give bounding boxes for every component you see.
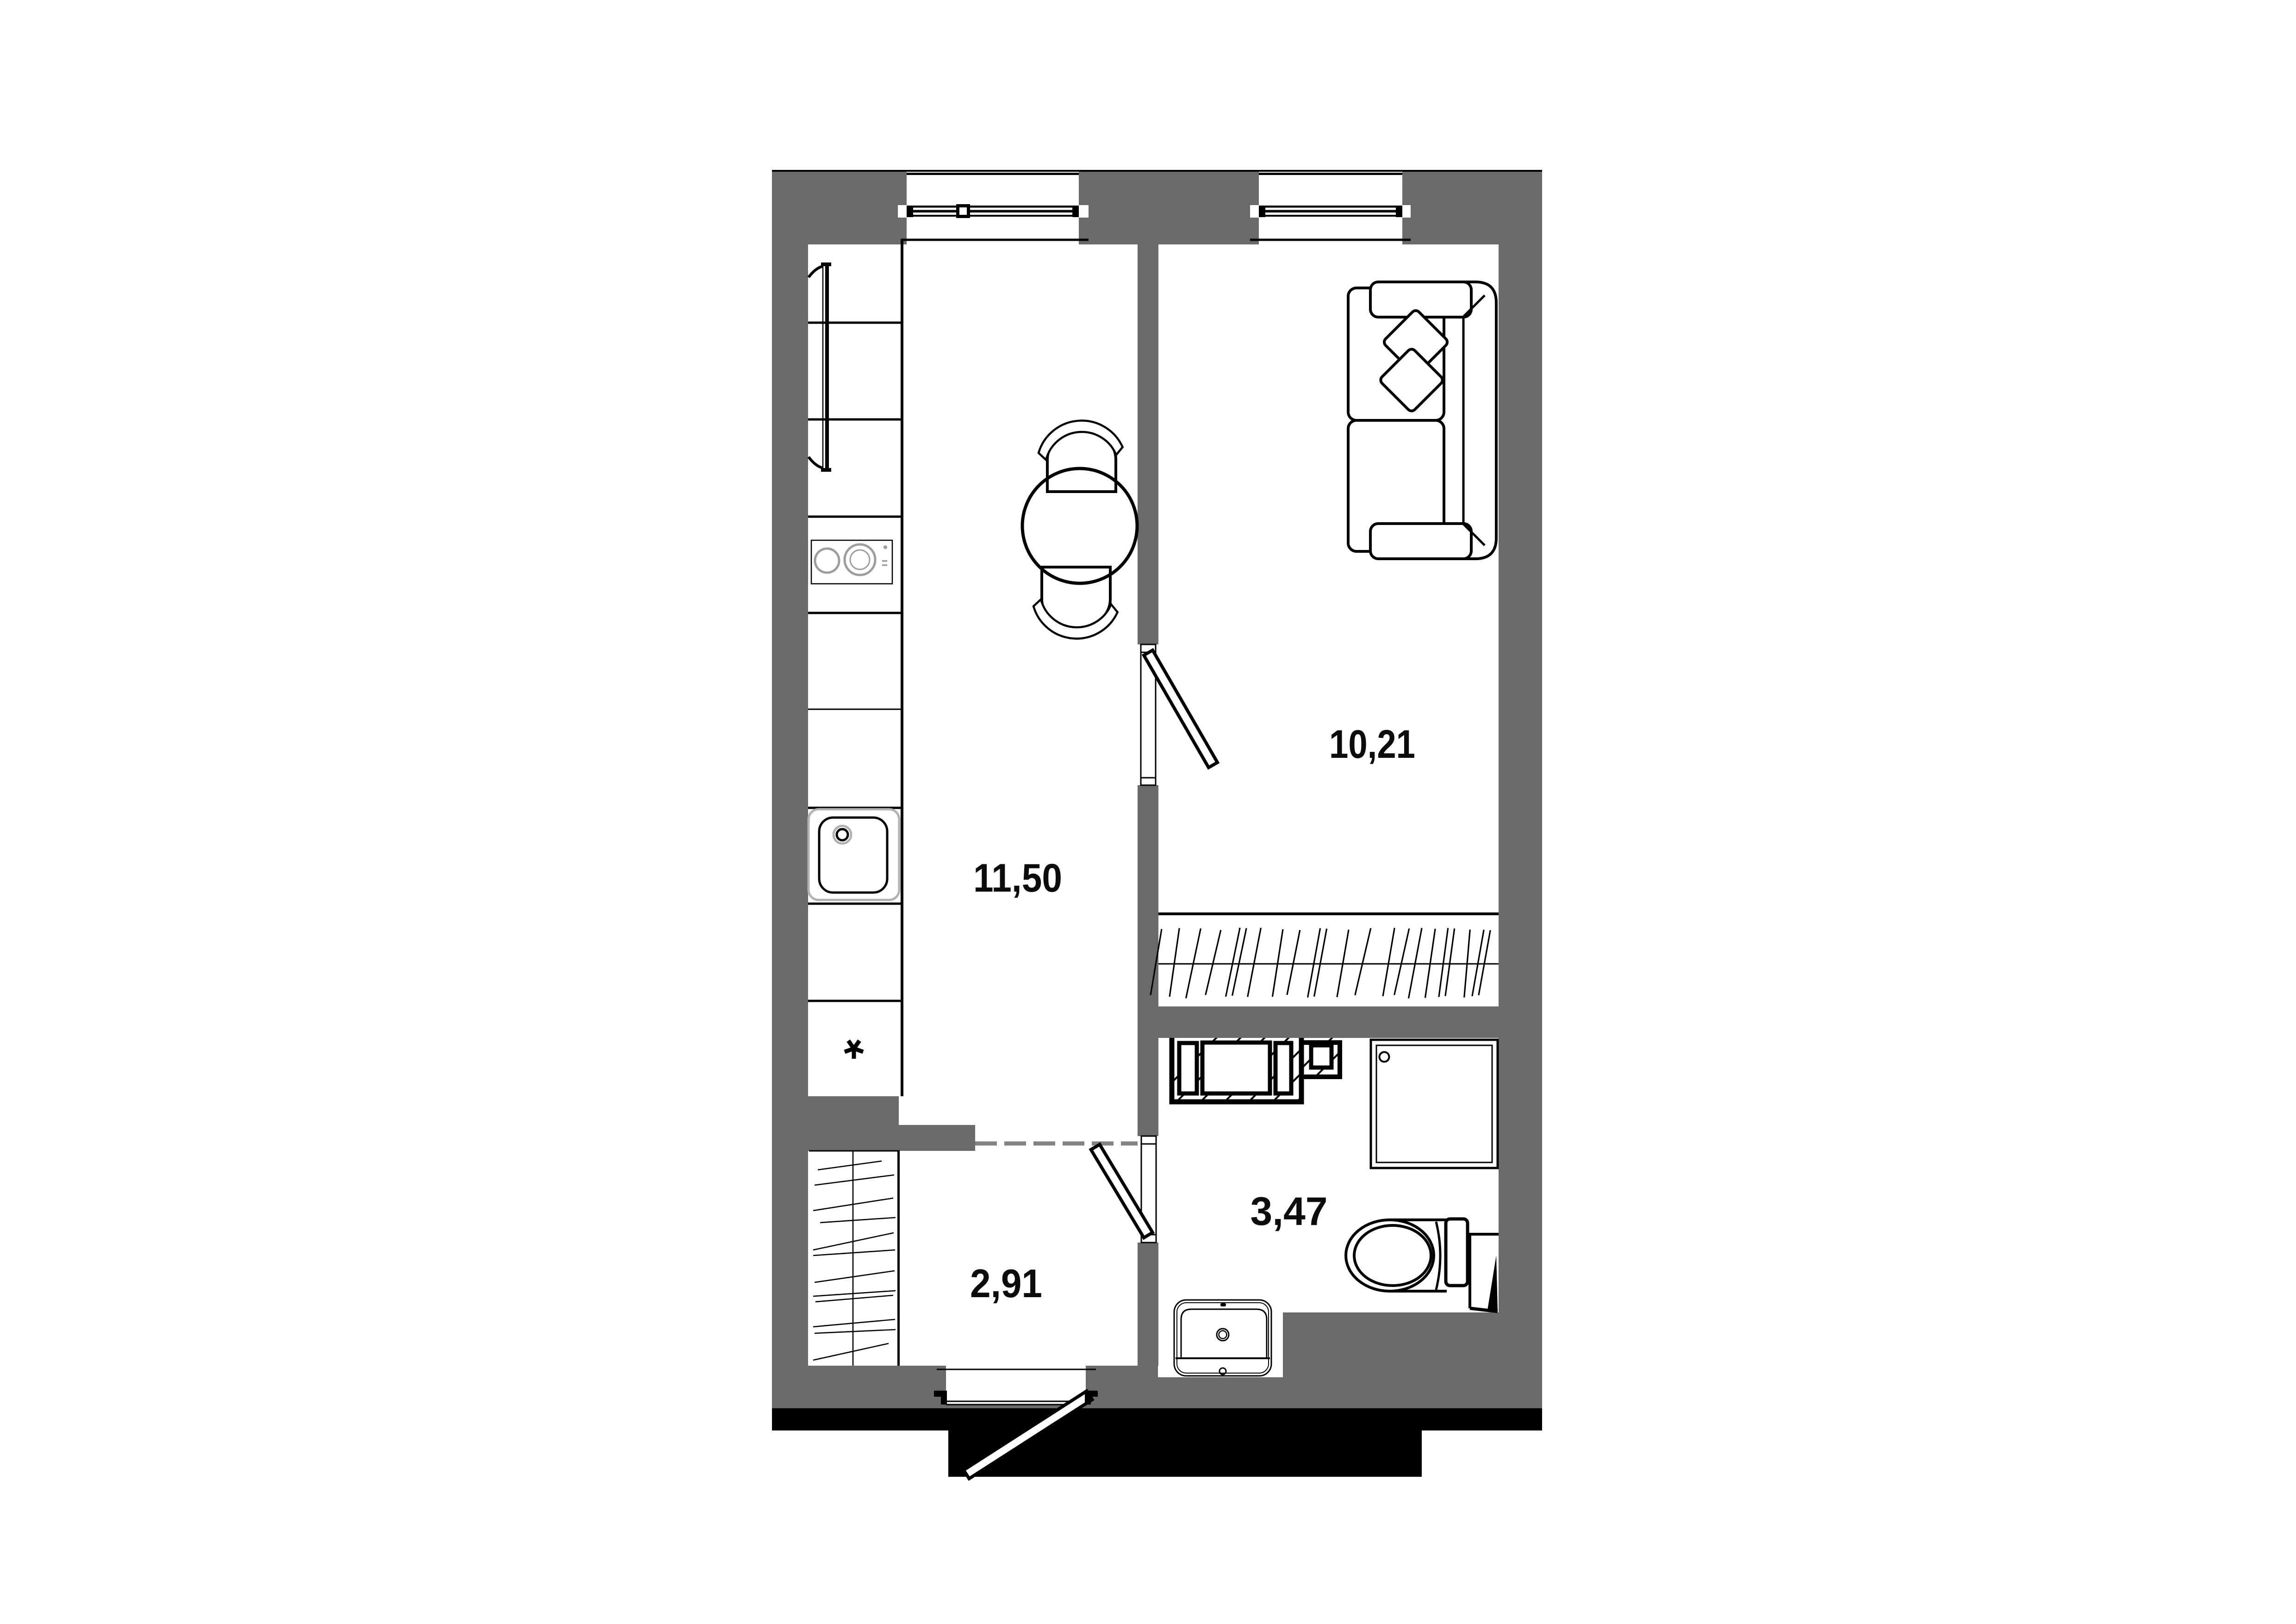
svg-text:3,47: 3,47 xyxy=(1251,1189,1328,1234)
svg-text:11,50: 11,50 xyxy=(973,856,1062,900)
svg-text:2,91: 2,91 xyxy=(970,1262,1042,1306)
svg-text:10,21: 10,21 xyxy=(1329,722,1415,767)
